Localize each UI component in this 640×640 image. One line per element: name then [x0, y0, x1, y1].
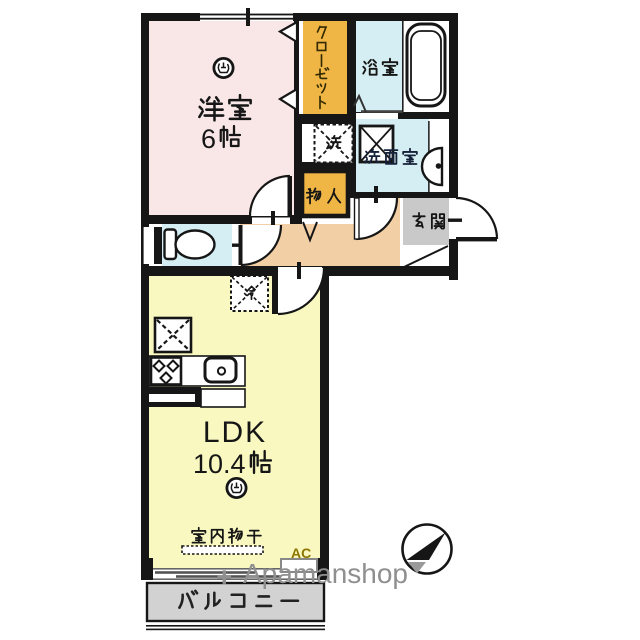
svg-text:6: 6	[201, 124, 216, 154]
svg-text:LDK: LDK	[203, 416, 267, 449]
svg-text:10.4: 10.4	[193, 449, 246, 479]
svg-text:Apamanshop: Apamanshop	[243, 558, 408, 589]
